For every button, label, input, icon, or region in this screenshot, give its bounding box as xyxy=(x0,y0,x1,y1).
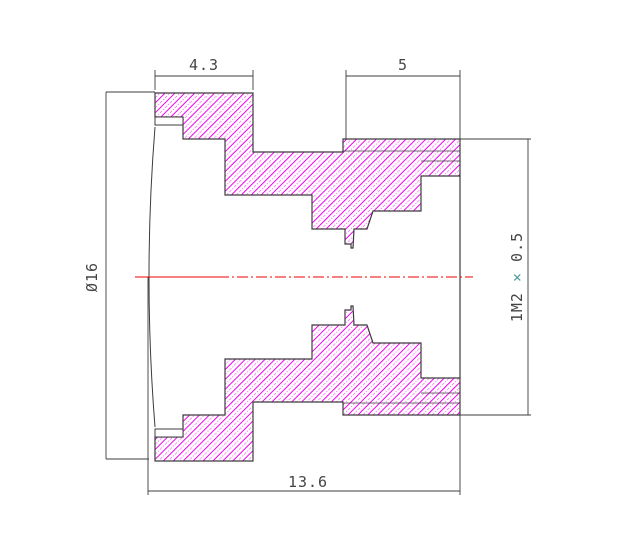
upper-cross-section xyxy=(155,93,460,248)
label-thread-length: 5 xyxy=(398,56,408,74)
technical-drawing-canvas: 4.3 5 13.6 Ø16 1M2 × 0.5 xyxy=(0,0,619,554)
label-thread-spec-times-symbol: × xyxy=(508,272,526,282)
label-thread-spec-suffix: 0.5 xyxy=(508,232,526,262)
lens-barrel-section-drawing: 4.3 5 13.6 Ø16 1M2 × 0.5 xyxy=(0,0,619,554)
label-flange-width: 4.3 xyxy=(189,56,219,74)
lens-rim-seat-upper xyxy=(155,117,183,125)
label-thread-spec: 1M2 × 0.5 xyxy=(508,232,526,322)
label-thread-spec-prefix: 1M2 xyxy=(508,282,526,322)
lower-cross-section xyxy=(155,306,460,461)
lens-rim-seat-lower xyxy=(155,429,183,437)
label-outer-diameter: Ø16 xyxy=(83,262,101,292)
label-overall-length: 13.6 xyxy=(288,473,328,491)
